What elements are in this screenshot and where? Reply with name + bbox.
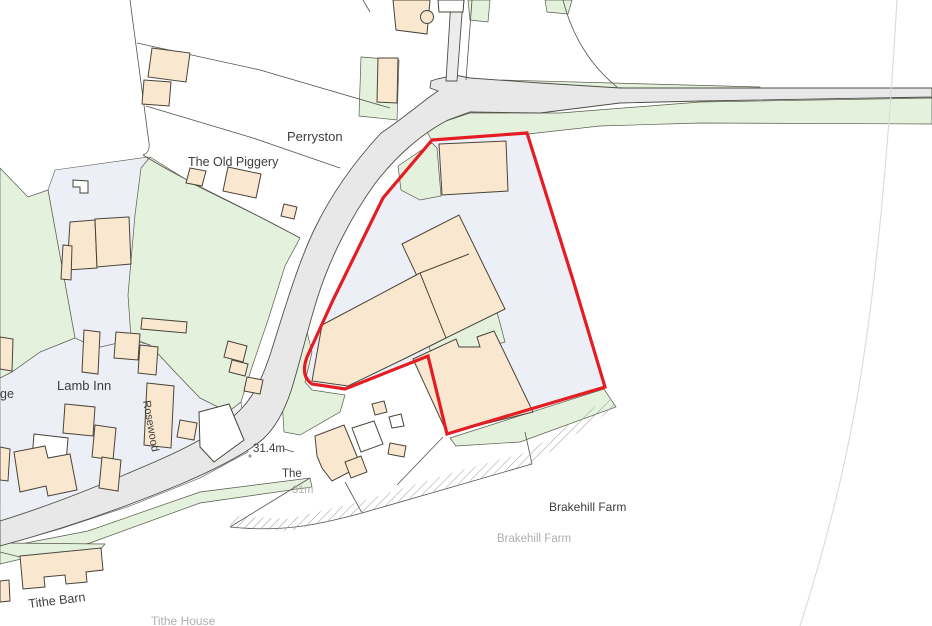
line-farm-north <box>397 437 443 485</box>
label-ge: ge <box>0 387 14 401</box>
label-perryston: Perryston <box>287 129 343 144</box>
line-farm-south <box>362 464 532 513</box>
building-left-edge <box>0 337 13 371</box>
building-bottom-edge <box>0 580 10 602</box>
line-31m-tick <box>284 449 294 452</box>
building-lane-4 <box>99 457 121 491</box>
building-lane-2 <box>63 404 95 436</box>
line-top-left-stub <box>363 0 370 12</box>
building-lamb-out-2 <box>95 217 131 267</box>
white-building-farm-annex <box>352 421 383 452</box>
building-lane-3 <box>92 425 116 460</box>
building-farm-small <box>388 443 406 457</box>
building-piggery-small <box>186 168 206 186</box>
label-lamb-inn: Lamb Inn <box>57 378 111 393</box>
building-bump <box>421 11 434 24</box>
building-cluster-2 <box>138 345 158 375</box>
building-piggery-large <box>223 167 261 198</box>
building-piggery-east <box>281 204 297 219</box>
white-building-top <box>438 0 464 12</box>
site-plan-svg: PerrystonThe Old PiggeryLamb InngeRosewo… <box>0 0 932 626</box>
spot-height-dot <box>248 454 251 457</box>
label-tithe-barn: Tithe Barn <box>28 590 87 611</box>
label-brakehill-farm-grey: Brakehill Farm <box>497 533 571 545</box>
label-tithe-house: Tithe House <box>151 614 216 626</box>
label-old-piggery: The Old Piggery <box>188 155 279 169</box>
building-left-partial <box>0 447 10 481</box>
label-31m: 31m <box>292 484 313 496</box>
building-bend-small-2 <box>177 420 197 440</box>
site-plan-map[interactable]: PerrystonThe Old PiggeryLamb InngeRosewo… <box>0 0 932 626</box>
building-bend-small <box>244 377 263 394</box>
building-drive-side <box>377 58 398 103</box>
label-spot-height: 31.4m <box>253 443 285 455</box>
building-nw-2 <box>142 80 171 106</box>
building-nw-1 <box>148 48 190 82</box>
building-farm-tab <box>372 401 387 415</box>
white-building-farm-small <box>389 414 404 428</box>
label-brakehill-farm: Brakehill Farm <box>549 500 626 514</box>
green-top-patch-2 <box>545 0 572 14</box>
line-west-boundary <box>130 0 149 155</box>
building-cluster-1 <box>114 332 140 360</box>
label-the: The <box>282 468 302 480</box>
building-lamb-tab <box>61 245 72 280</box>
building-lane-top <box>82 330 100 374</box>
line-perryston-east <box>563 0 617 87</box>
building-inred-top <box>439 141 508 195</box>
